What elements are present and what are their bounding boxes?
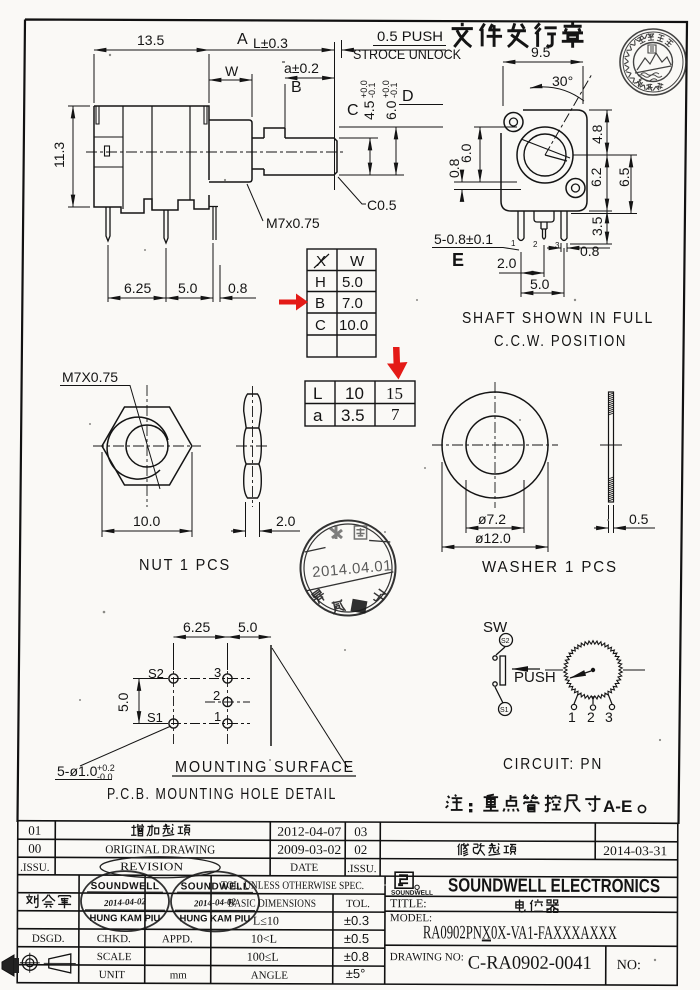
svg-text:a: a (313, 406, 323, 425)
svg-text:1: 1 (568, 709, 576, 725)
svg-text:ø12.0: ø12.0 (475, 530, 511, 546)
svg-text:C0.5: C0.5 (367, 197, 397, 213)
svg-text:0.5: 0.5 (629, 511, 649, 527)
svg-text:P.C.B. MOUNTING HOLE DETAIL: P.C.B. MOUNTING HOLE DETAIL (107, 786, 337, 803)
svg-text:100≤L: 100≤L (247, 950, 279, 964)
svg-text:SOUNDWELL: SOUNDWELL (91, 881, 160, 892)
svg-text:30°: 30° (552, 73, 573, 89)
svg-text:2014-03-31: 2014-03-31 (603, 843, 667, 858)
svg-text:W: W (225, 63, 239, 79)
svg-text:±0.3: ±0.3 (344, 913, 369, 928)
svg-text:2: 2 (533, 240, 538, 249)
svg-text:H: H (315, 274, 326, 291)
svg-text:.ISSU.: .ISSU. (20, 862, 50, 874)
svg-text:2: 2 (213, 688, 220, 703)
svg-text:STROCE UNLOCK: STROCE UNLOCK (353, 46, 462, 62)
svg-text:D: D (402, 88, 414, 105)
svg-text:5.0: 5.0 (178, 280, 198, 296)
svg-text:ø7.2: ø7.2 (478, 511, 506, 527)
svg-text:5.0: 5.0 (530, 276, 550, 292)
svg-text:CIRCUIT: PN: CIRCUIT: PN (503, 756, 603, 773)
svg-text:2: 2 (587, 709, 595, 725)
svg-text:1: 1 (511, 239, 516, 248)
svg-text:6.25: 6.25 (124, 280, 151, 296)
svg-text:mm: mm (170, 969, 188, 981)
svg-text:3: 3 (555, 241, 560, 250)
svg-text:10<L: 10<L (251, 932, 277, 946)
svg-text:4.5: 4.5 (361, 100, 377, 120)
svg-text:6.5: 6.5 (616, 167, 632, 187)
svg-text:WASHER 1 PCS: WASHER 1 PCS (482, 559, 618, 576)
svg-text:0.8: 0.8 (580, 243, 600, 259)
svg-text:2009-03-02: 2009-03-02 (277, 842, 341, 857)
svg-text:SOUNDWELL ELECTRONICS: SOUNDWELL ELECTRONICS (448, 875, 660, 897)
svg-text:APPD.: APPD. (162, 933, 193, 945)
svg-text:2014-04-02: 2014-04-02 (103, 896, 147, 908)
svg-text:±5°: ±5° (346, 966, 366, 981)
svg-text:-0.1: -0.1 (367, 82, 377, 98)
svg-text:5-0.8±0.1: 5-0.8±0.1 (434, 231, 493, 247)
svg-text:15: 15 (386, 384, 403, 403)
svg-text:5.0: 5.0 (342, 274, 363, 291)
svg-text:3: 3 (214, 665, 221, 680)
svg-text:6.0: 6.0 (383, 100, 399, 120)
svg-text:4.8: 4.8 (589, 124, 605, 144)
svg-text:0.5 PUSH: 0.5 PUSH (377, 28, 443, 44)
svg-text:0.8: 0.8 (228, 280, 248, 296)
svg-text:3: 3 (605, 709, 613, 725)
svg-text:2012-04-07: 2012-04-07 (277, 824, 342, 839)
svg-text:3.5: 3.5 (341, 406, 365, 425)
svg-text:NUT 1 PCS: NUT 1 PCS (139, 557, 231, 574)
svg-text:02: 02 (354, 842, 367, 857)
svg-text:±0.8: ±0.8 (344, 949, 369, 964)
svg-text:SOUNDWELL: SOUNDWELL (181, 881, 250, 892)
svg-text:A: A (237, 31, 248, 48)
svg-text:ANGLE: ANGLE (251, 970, 289, 982)
svg-text:13.5: 13.5 (137, 32, 164, 48)
svg-text:-0.0: -0.0 (97, 772, 113, 782)
svg-text:BASIC DIMENSIONS: BASIC DIMENSIONS (228, 898, 316, 910)
svg-text:a±0.2: a±0.2 (284, 60, 319, 76)
svg-text:7.0: 7.0 (342, 295, 363, 312)
svg-text:DSGD.: DSGD. (32, 933, 65, 945)
svg-text:.ISSU.: .ISSU. (347, 863, 377, 875)
svg-text:5-ø1.0: 5-ø1.0 (57, 763, 98, 779)
svg-text:PUSH: PUSH (514, 669, 556, 686)
svg-text:10: 10 (345, 384, 364, 403)
svg-text:DATE: DATE (290, 862, 318, 874)
svg-text:2014-04-02: 2014-04-02 (193, 896, 237, 908)
svg-text:-0.1: -0.1 (389, 82, 399, 98)
svg-text:6.2: 6.2 (588, 167, 604, 187)
svg-text:11.3: 11.3 (51, 142, 67, 168)
svg-text:1: 1 (214, 709, 221, 724)
svg-text:MOUNTING SURFACE: MOUNTING SURFACE (175, 759, 355, 776)
svg-text:L: L (313, 384, 322, 403)
svg-text:A-E: A-E (603, 797, 632, 816)
svg-text:S1: S1 (500, 707, 509, 714)
svg-text:L±0.3: L±0.3 (253, 35, 288, 51)
svg-text:C.C.W. POSITION: C.C.W. POSITION (494, 333, 627, 350)
svg-text:CHKD.: CHKD. (97, 933, 131, 945)
svg-text:RA0902PNX0X-VA1-FAXXXAXXX: RA0902PNX0X-VA1-FAXXXAXXX (423, 922, 617, 944)
svg-text:TOL.: TOL. (346, 898, 370, 910)
svg-text:±0.5: ±0.5 (344, 931, 369, 946)
svg-text:M7X0.75: M7X0.75 (62, 369, 118, 385)
svg-text:C: C (315, 317, 326, 334)
svg-text:SCALE: SCALE (97, 951, 132, 963)
svg-text:5.0: 5.0 (238, 619, 258, 635)
svg-text:HUNG KAM PIU: HUNG KAM PIU (180, 913, 251, 924)
svg-text:2.0: 2.0 (497, 255, 517, 271)
svg-text:L≤10: L≤10 (253, 914, 279, 928)
svg-text:9.5: 9.5 (531, 44, 551, 60)
svg-text:B: B (315, 295, 325, 312)
svg-text:7: 7 (391, 405, 400, 424)
svg-text:TITLE:: TITLE: (390, 896, 427, 910)
svg-text:DRAWING NO:: DRAWING NO: (390, 951, 464, 963)
svg-text:M7x0.75: M7x0.75 (266, 215, 320, 231)
svg-text:E: E (452, 250, 464, 270)
svg-text:NO:: NO: (617, 958, 641, 973)
svg-text:W: W (350, 253, 365, 270)
svg-text:0.8: 0.8 (446, 158, 462, 178)
svg-text:SHAFT SHOWN IN FULL: SHAFT SHOWN IN FULL (462, 310, 654, 327)
svg-text:2014.04.01: 2014.04.01 (312, 557, 393, 581)
svg-text:HUNG KAM PIU: HUNG KAM PIU (90, 913, 161, 924)
svg-text:2.0: 2.0 (276, 513, 296, 529)
svg-text:6.25: 6.25 (183, 619, 210, 635)
svg-text:5.0: 5.0 (115, 692, 131, 712)
svg-text:3.5: 3.5 (589, 216, 605, 236)
svg-text:S1: S1 (147, 710, 163, 725)
svg-text:10.0: 10.0 (339, 317, 368, 334)
svg-text:C-RA0902-0041: C-RA0902-0041 (468, 952, 592, 973)
svg-text:03: 03 (354, 824, 367, 839)
svg-text:10.0: 10.0 (133, 513, 160, 529)
svg-text:01: 01 (28, 823, 41, 838)
svg-text:UNIT: UNIT (99, 969, 126, 981)
svg-text:00: 00 (28, 841, 41, 856)
svg-text:C: C (347, 102, 359, 119)
svg-text:S2: S2 (501, 638, 510, 645)
svg-text:ORIGINAL DRAWING: ORIGINAL DRAWING (105, 842, 215, 856)
